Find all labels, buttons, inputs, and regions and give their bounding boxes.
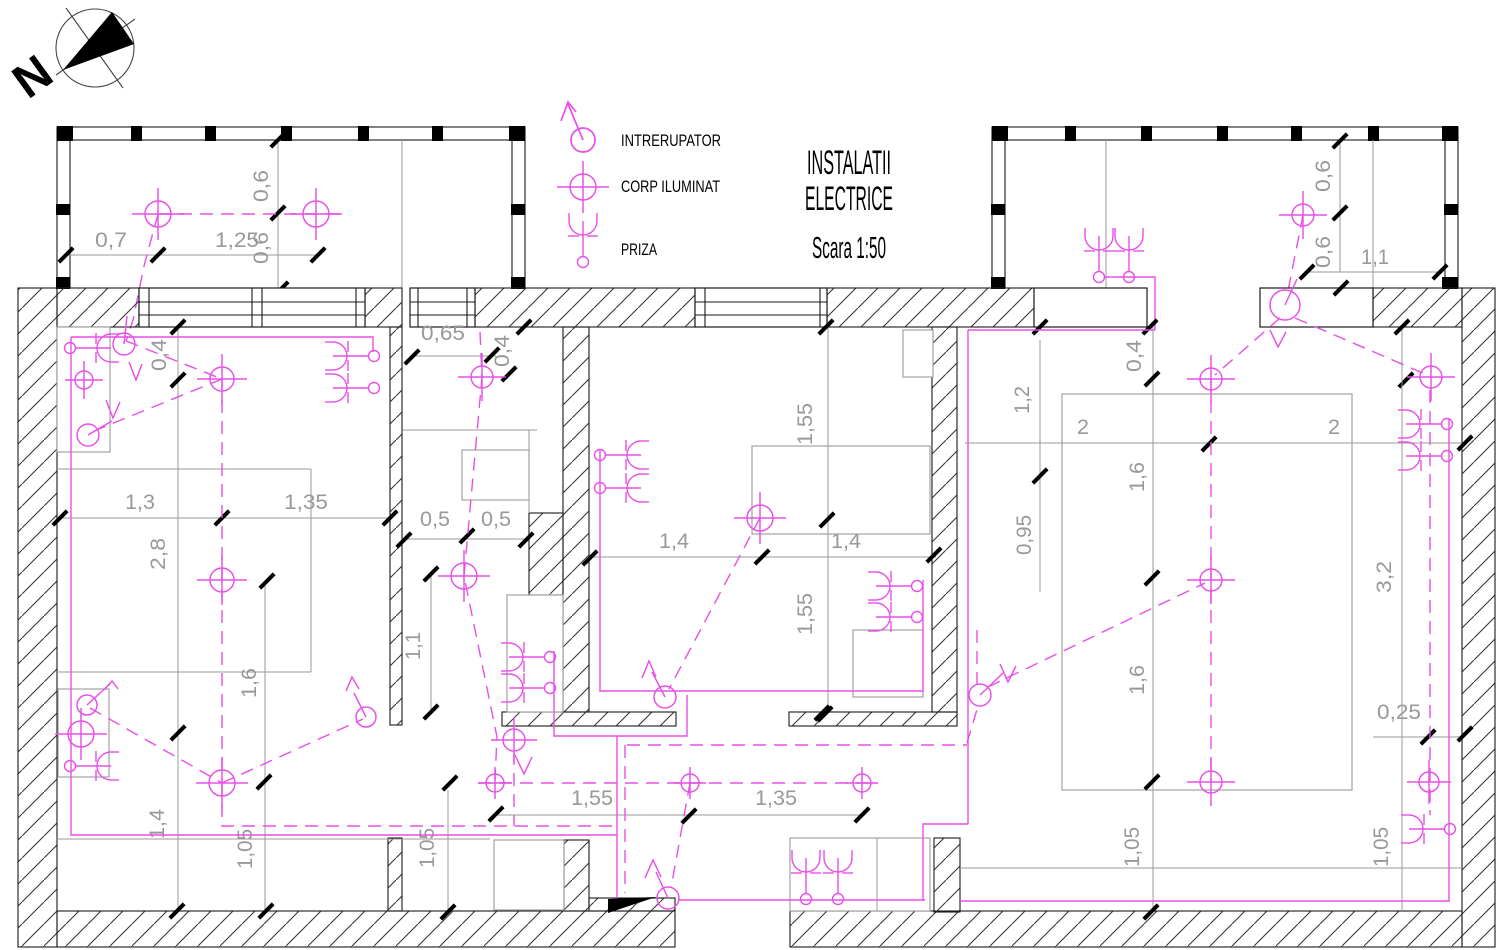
svg-text:0,25: 0,25	[1377, 701, 1421, 724]
svg-text:1,05: 1,05	[416, 828, 439, 868]
svg-text:INTRERUPATOR: INTRERUPATOR	[621, 131, 721, 150]
svg-text:0,6: 0,6	[250, 170, 273, 202]
svg-text:CORP ILUMINAT: CORP ILUMINAT	[621, 177, 720, 196]
svg-text:2,8: 2,8	[147, 538, 170, 570]
svg-text:ELECTRICE: ELECTRICE	[805, 180, 893, 218]
svg-text:INSTALATII: INSTALATII	[807, 144, 891, 182]
svg-text:1,35: 1,35	[755, 787, 797, 810]
svg-text:1,4: 1,4	[659, 530, 689, 553]
svg-text:2: 2	[1328, 416, 1340, 439]
svg-text:1,35: 1,35	[284, 491, 328, 514]
svg-text:0,5: 0,5	[420, 508, 450, 531]
svg-text:2: 2	[1077, 416, 1089, 439]
svg-text:1,55: 1,55	[571, 787, 613, 810]
svg-text:0,6: 0,6	[1312, 236, 1335, 268]
svg-text:0,65: 0,65	[421, 322, 465, 345]
svg-text:1,55: 1,55	[794, 593, 817, 635]
svg-text:0,6: 0,6	[250, 232, 273, 264]
svg-text:1,4: 1,4	[831, 530, 861, 553]
svg-text:1,05: 1,05	[1370, 827, 1393, 867]
svg-text:0,4: 0,4	[148, 339, 171, 371]
svg-text:1,2: 1,2	[1011, 386, 1034, 414]
svg-text:0,5: 0,5	[481, 508, 511, 531]
svg-text:1,05: 1,05	[1121, 827, 1144, 867]
svg-text:0,95: 0,95	[1013, 515, 1036, 555]
svg-text:1,6: 1,6	[1126, 665, 1149, 695]
svg-text:0,6: 0,6	[1312, 160, 1335, 192]
svg-text:3,2: 3,2	[1373, 561, 1396, 593]
svg-text:1,6: 1,6	[238, 668, 261, 698]
svg-text:Scara 1:50: Scara 1:50	[812, 230, 886, 265]
svg-text:PRIZA: PRIZA	[621, 240, 657, 259]
svg-text:0,4: 0,4	[1123, 340, 1146, 372]
svg-text:0,7: 0,7	[95, 229, 127, 252]
svg-text:1,1: 1,1	[1361, 246, 1389, 269]
svg-text:1,1: 1,1	[402, 632, 425, 660]
svg-text:1,6: 1,6	[1126, 462, 1149, 492]
svg-text:1,55: 1,55	[794, 403, 817, 445]
svg-text:1,3: 1,3	[125, 491, 155, 514]
svg-text:0,4: 0,4	[491, 335, 514, 367]
